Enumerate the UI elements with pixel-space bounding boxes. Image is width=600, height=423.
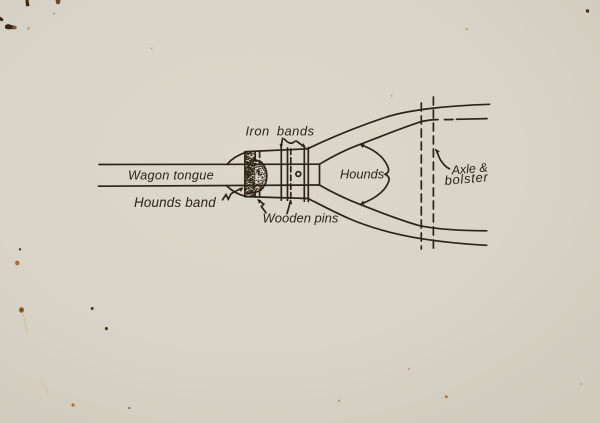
svg-text:Hounds band: Hounds band (134, 195, 216, 210)
svg-text:Iron bands: Iron bands (246, 124, 315, 139)
svg-text:Wooden pins: Wooden pins (263, 211, 339, 226)
svg-text:Hounds: Hounds (340, 167, 385, 182)
svg-text:Wagon tongue: Wagon tongue (128, 168, 214, 183)
